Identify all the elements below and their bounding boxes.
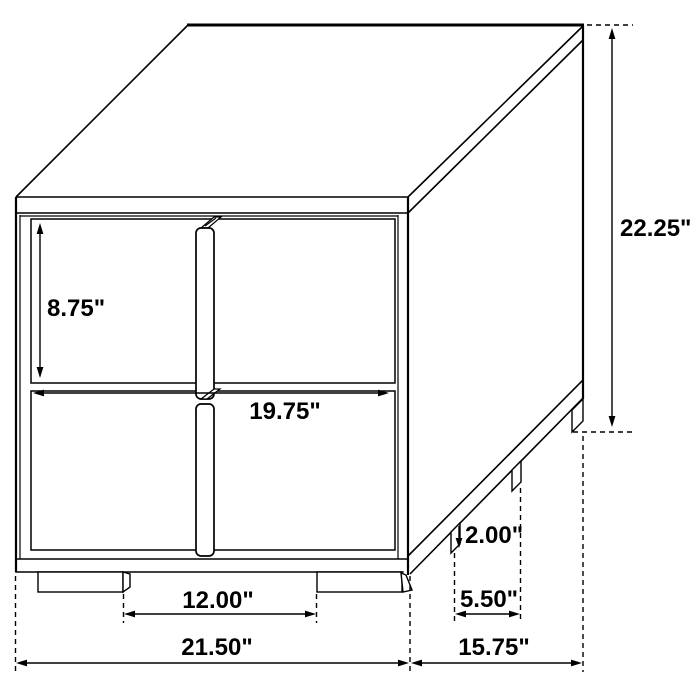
arrowhead-down — [609, 416, 616, 427]
arrowhead-right — [398, 660, 409, 667]
arrowhead-left — [124, 611, 135, 618]
top-right-edge — [408, 26, 583, 197]
front-right-foot — [317, 572, 402, 592]
top-left-edge — [16, 25, 188, 197]
upper-drawer-handle — [196, 228, 214, 399]
dim-label-side-foot-spacing: 5.50" — [460, 586, 518, 613]
arrowhead-right — [305, 611, 316, 618]
dimension-side-foot-spacing: 5.50" — [455, 488, 521, 623]
front-left-foot — [38, 572, 123, 592]
dimension-diagram: 8.75" 19.75" 22.25" 2.00" — [0, 0, 700, 700]
dimension-foot-height: 2.00" — [456, 522, 523, 549]
dim-label-drawer-width: 19.75" — [249, 398, 320, 425]
dim-label-overall-width: 21.50" — [181, 634, 252, 661]
side-foot-rear — [512, 461, 521, 491]
dim-label-front-foot-spacing: 12.00" — [182, 587, 253, 614]
lower-drawer-handle — [196, 404, 214, 556]
dim-label-overall-depth: 15.75" — [458, 634, 529, 661]
dimension-overall-height: 22.25" — [573, 25, 691, 432]
front-left-foot-side — [123, 572, 130, 592]
dim-label-overall-height: 22.25" — [620, 215, 691, 242]
arrowhead-up — [609, 28, 616, 39]
dim-label-foot-height: 2.00" — [465, 522, 523, 549]
arrowhead-right — [571, 660, 582, 667]
dimension-overall-depth: 15.75" — [411, 436, 583, 672]
back-corner-foot — [572, 399, 583, 432]
dimension-front-foot-spacing: 12.00" — [124, 587, 317, 623]
nightstand-dimension-drawing: 8.75" 19.75" 22.25" 2.00" — [0, 0, 700, 700]
top-panel — [16, 25, 584, 213]
top-side-lower-edge — [408, 40, 583, 213]
dim-label-drawer-height: 8.75" — [47, 295, 105, 322]
arrowhead-left — [16, 660, 27, 667]
arrowhead-left — [411, 660, 422, 667]
